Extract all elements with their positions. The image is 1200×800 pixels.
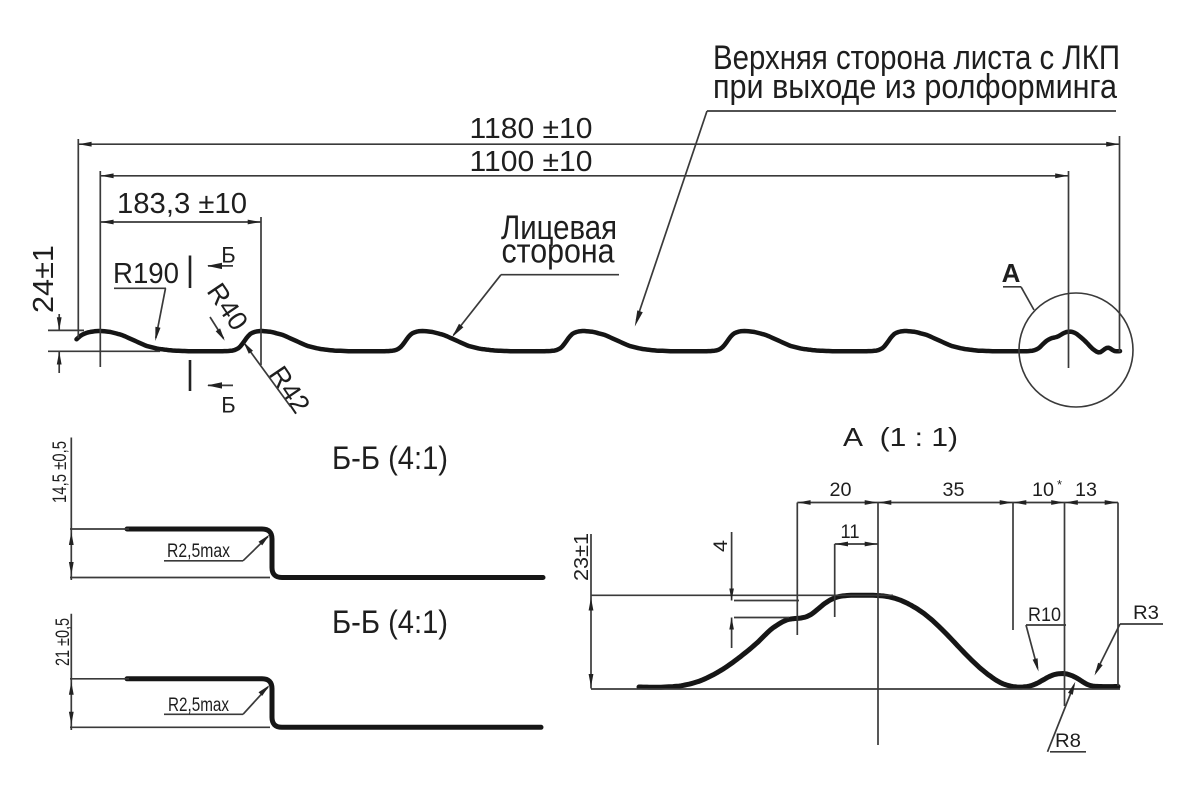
svg-text:R2,5max: R2,5max bbox=[167, 541, 230, 562]
svg-text:Б: Б bbox=[221, 393, 235, 418]
svg-text:11: 11 bbox=[841, 522, 860, 543]
svg-text:23±1: 23±1 bbox=[571, 533, 593, 581]
svg-text:13: 13 bbox=[1075, 480, 1097, 501]
svg-text:1100 ±10: 1100 ±10 bbox=[470, 146, 593, 178]
svg-text:Б: Б bbox=[221, 243, 235, 268]
svg-text:R2,5max: R2,5max bbox=[168, 695, 229, 716]
svg-text:A (1 : 1): A (1 : 1) bbox=[843, 422, 958, 452]
svg-text:сторона: сторона bbox=[502, 233, 615, 271]
svg-text:1180 ±10: 1180 ±10 bbox=[470, 113, 593, 145]
svg-text:при выходе из ролформинга: при выходе из ролформинга bbox=[713, 68, 1117, 106]
svg-text:14,5 ±0,5: 14,5 ±0,5 bbox=[50, 441, 71, 503]
svg-text:*: * bbox=[1057, 477, 1062, 492]
svg-text:183,3 ±10: 183,3 ±10 bbox=[117, 188, 247, 220]
svg-text:21 ±0,5: 21 ±0,5 bbox=[53, 618, 74, 666]
svg-text:A: A bbox=[1002, 258, 1021, 288]
svg-text:20: 20 bbox=[830, 480, 852, 501]
svg-text:R8: R8 bbox=[1055, 731, 1081, 752]
svg-text:4: 4 bbox=[711, 540, 732, 552]
svg-text:10: 10 bbox=[1032, 480, 1054, 501]
svg-text:35: 35 bbox=[943, 480, 965, 501]
svg-text:Б-Б (4:1): Б-Б (4:1) bbox=[332, 604, 448, 640]
svg-text:R40: R40 bbox=[201, 278, 254, 336]
svg-text:Б-Б (4:1): Б-Б (4:1) bbox=[332, 440, 448, 476]
svg-text:R190: R190 bbox=[113, 258, 179, 290]
svg-text:R3: R3 bbox=[1133, 603, 1159, 624]
svg-text:R42: R42 bbox=[263, 361, 316, 419]
svg-text:R10: R10 bbox=[1028, 605, 1061, 626]
svg-text:24±1: 24±1 bbox=[28, 245, 60, 313]
